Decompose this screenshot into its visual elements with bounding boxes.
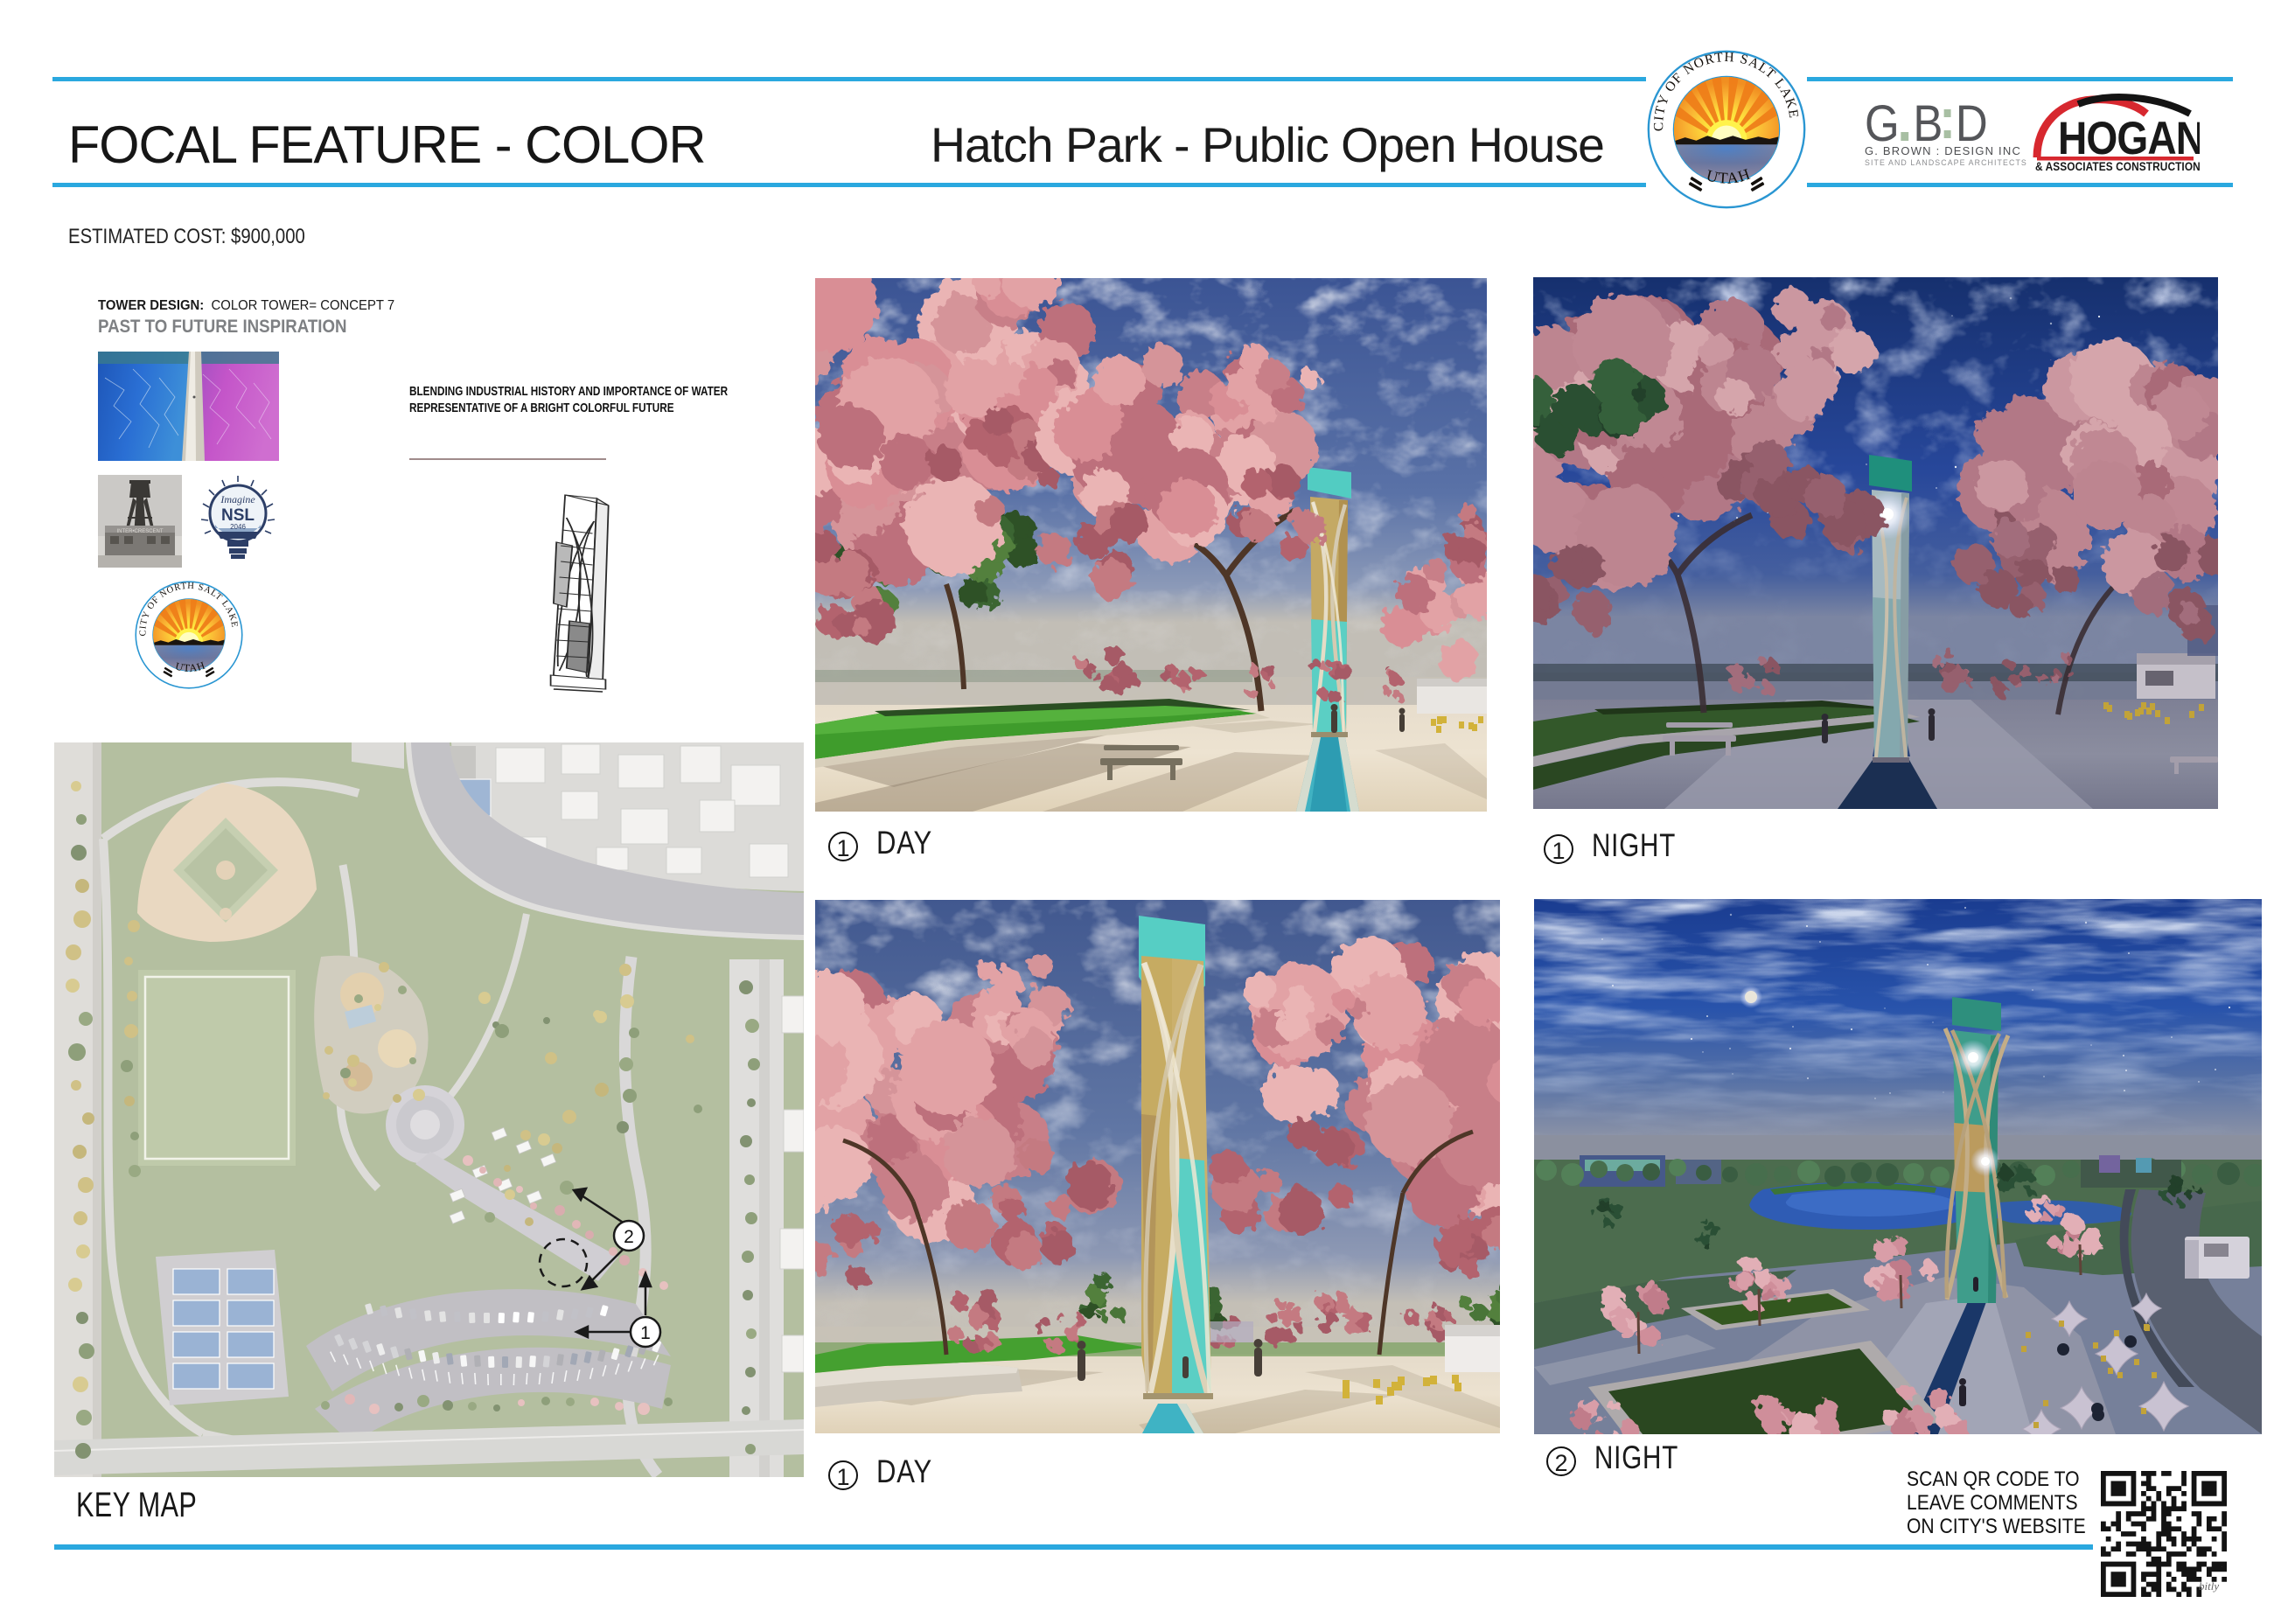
svg-text:HOGAN: HOGAN <box>2058 112 2200 164</box>
svg-text:& ASSOCIATES CONSTRUCTION: & ASSOCIATES CONSTRUCTION <box>2035 159 2200 173</box>
svg-text:Imagine: Imagine <box>220 493 255 505</box>
svg-text:2: 2 <box>624 1227 634 1247</box>
svg-text:1: 1 <box>640 1323 651 1343</box>
svg-text:G. BROWN : DESIGN INC: G. BROWN : DESIGN INC <box>1865 144 2021 157</box>
svg-text:2046: 2046 <box>230 523 246 531</box>
svg-text:NSL: NSL <box>221 506 255 525</box>
svg-text:SITE AND LANDSCAPE ARCHITECTS: SITE AND LANDSCAPE ARCHITECTS <box>1865 158 2027 167</box>
svg-text:INTER•CRESCENT: INTER•CRESCENT <box>116 529 163 534</box>
